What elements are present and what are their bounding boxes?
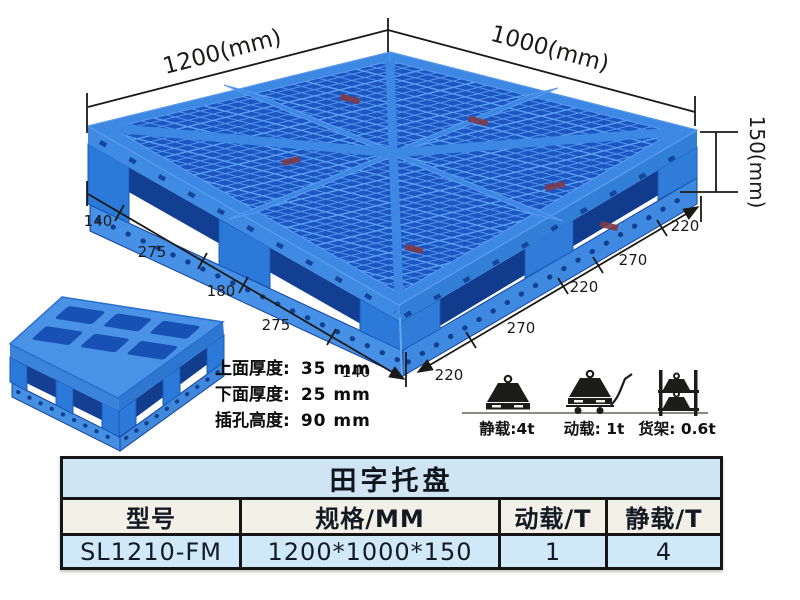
product-sheet: 1200(mm) 1000(mm) 150(mm) 140 275 180 27… xyxy=(0,0,800,600)
load-icons: 静载:4t 动载: 1t 货架: 0.6t xyxy=(462,370,716,438)
dim-right-1: 270 xyxy=(507,319,536,337)
spec-table-grid: 型号 规格/MM 动载/T 静载/T SL1210-FM 1200*1000*1… xyxy=(63,500,720,567)
static-load-icon xyxy=(486,376,530,410)
note-bottom-thickness: 下面厚度:25 mm xyxy=(215,382,371,408)
note-label: 上面厚度: xyxy=(215,359,290,379)
spec-header-static: 静载/T xyxy=(608,500,720,533)
load-label-rack: 货架: 0.6t xyxy=(638,419,716,438)
spec-table: 田字托盘 型号 规格/MM 动载/T 静载/T SL1210-FM 1200*1… xyxy=(60,456,723,570)
load-label-static: 静载:4t xyxy=(479,419,535,438)
dynamic-load-icon xyxy=(566,371,632,414)
dim-label-width: 1000(mm) xyxy=(488,21,612,78)
spec-table-title: 田字托盘 xyxy=(63,459,720,497)
rack-load-icon xyxy=(658,370,699,416)
spec-value-model: SL1210-FM xyxy=(63,536,239,567)
dim-left-1: 275 xyxy=(138,243,167,261)
spec-value-size: 1200*1000*150 xyxy=(242,536,498,567)
dim-left-2: 180 xyxy=(207,282,236,300)
note-value: 25 mm xyxy=(301,385,371,405)
dim-right-3: 270 xyxy=(619,251,648,269)
note-fork-height: 插孔高度:90 mm xyxy=(215,408,371,434)
spec-value-dynamic: 1 xyxy=(501,536,605,567)
dim-left-0: 140 xyxy=(84,212,113,230)
dim-label-height: 150(mm) xyxy=(745,116,769,209)
dim-left-3: 275 xyxy=(262,316,291,334)
spec-value-static: 4 xyxy=(608,536,720,567)
load-label-dynamic: 动载: 1t xyxy=(564,420,625,438)
note-value: 90 mm xyxy=(301,411,371,431)
note-label: 插孔高度: xyxy=(215,411,290,431)
note-value: 35 mm xyxy=(301,359,371,379)
spec-header-model: 型号 xyxy=(63,500,239,533)
dim-right-2: 220 xyxy=(570,278,599,296)
small-pallet xyxy=(10,297,224,451)
note-top-thickness: 上面厚度:35 mm xyxy=(215,356,371,382)
dim-right-0: 220 xyxy=(435,366,464,384)
spec-header-dynamic: 动载/T xyxy=(501,500,605,533)
dim-right-4: 220 xyxy=(671,217,700,235)
note-label: 下面厚度: xyxy=(215,385,290,405)
spec-header-size: 规格/MM xyxy=(242,500,498,533)
thickness-notes: 上面厚度:35 mm 下面厚度:25 mm 插孔高度:90 mm xyxy=(215,356,371,434)
